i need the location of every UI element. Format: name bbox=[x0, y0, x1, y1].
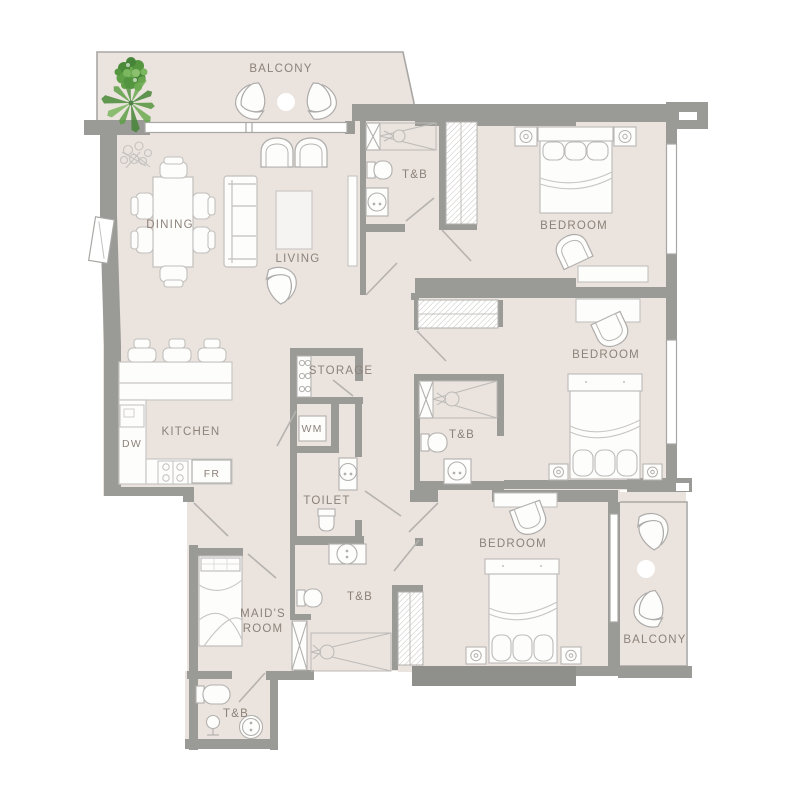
svg-text:FR: FR bbox=[204, 468, 220, 480]
svg-text:ROOM: ROOM bbox=[243, 623, 284, 635]
svg-text:KITCHEN: KITCHEN bbox=[162, 426, 221, 438]
svg-text:DW: DW bbox=[122, 438, 142, 450]
svg-text:MAID'S: MAID'S bbox=[240, 608, 286, 620]
svg-text:BALCONY: BALCONY bbox=[249, 63, 312, 75]
svg-text:BEDROOM: BEDROOM bbox=[479, 538, 547, 550]
svg-text:WM: WM bbox=[301, 423, 322, 435]
svg-text:BEDROOM: BEDROOM bbox=[572, 349, 640, 361]
svg-text:BEDROOM: BEDROOM bbox=[540, 220, 608, 232]
svg-text:T&B: T&B bbox=[449, 429, 475, 441]
svg-text:DINING: DINING bbox=[146, 219, 193, 231]
svg-text:BALCONY: BALCONY bbox=[623, 634, 686, 646]
svg-text:STORAGE: STORAGE bbox=[309, 365, 373, 377]
svg-text:TOILET: TOILET bbox=[303, 495, 350, 507]
svg-text:T&B: T&B bbox=[402, 169, 428, 181]
svg-text:T&B: T&B bbox=[223, 708, 249, 720]
svg-text:T&B: T&B bbox=[347, 591, 373, 603]
svg-text:LIVING: LIVING bbox=[276, 253, 321, 265]
